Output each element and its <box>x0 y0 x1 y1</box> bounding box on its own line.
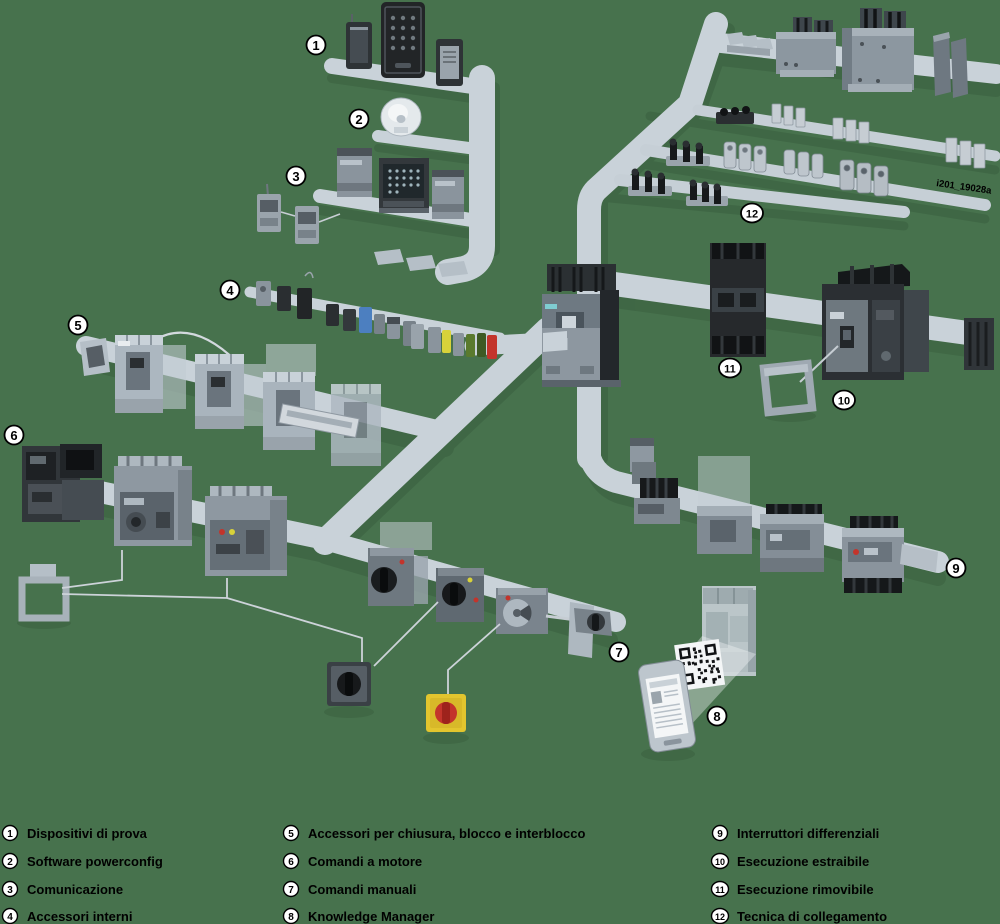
svg-text:3: 3 <box>7 885 13 896</box>
svg-text:Esecuzione estraibile: Esecuzione estraibile <box>737 854 869 869</box>
svg-text:Accessori per chiusura, blocco: Accessori per chiusura, blocco e interbl… <box>308 826 585 841</box>
svg-text:1: 1 <box>7 829 13 840</box>
svg-text:4: 4 <box>7 912 13 923</box>
svg-text:12: 12 <box>746 209 758 221</box>
svg-text:Accessori interni: Accessori interni <box>27 909 133 924</box>
svg-text:1: 1 <box>312 38 319 53</box>
svg-text:10: 10 <box>838 396 850 408</box>
svg-text:4: 4 <box>226 283 234 298</box>
svg-text:11: 11 <box>724 364 736 376</box>
svg-text:6: 6 <box>288 857 294 868</box>
svg-text:7: 7 <box>288 885 294 896</box>
svg-text:Comandi a motore: Comandi a motore <box>308 854 422 869</box>
svg-text:Knowledge Manager: Knowledge Manager <box>308 909 434 924</box>
svg-text:Comunicazione: Comunicazione <box>27 882 123 897</box>
svg-text:10: 10 <box>715 857 725 867</box>
svg-text:3: 3 <box>292 169 299 184</box>
svg-text:Tecnica di collegamento: Tecnica di collegamento <box>737 909 887 924</box>
svg-text:8: 8 <box>288 912 294 923</box>
svg-text:2: 2 <box>7 857 13 868</box>
svg-text:Dispositivi di prova: Dispositivi di prova <box>27 826 148 841</box>
svg-text:12: 12 <box>715 912 725 922</box>
svg-text:6: 6 <box>10 428 17 443</box>
svg-text:Software powerconfig: Software powerconfig <box>27 854 163 869</box>
svg-text:Comandi manuali: Comandi manuali <box>308 882 416 897</box>
svg-text:Interruttori differenziali: Interruttori differenziali <box>737 826 879 841</box>
svg-text:2: 2 <box>355 112 362 127</box>
svg-text:8: 8 <box>713 709 720 724</box>
svg-text:7: 7 <box>615 645 622 660</box>
svg-text:11: 11 <box>715 885 725 895</box>
svg-text:9: 9 <box>717 829 723 840</box>
svg-text:5: 5 <box>288 829 294 840</box>
svg-text:Esecuzione rimovibile: Esecuzione rimovibile <box>737 882 874 897</box>
svg-text:5: 5 <box>74 318 81 333</box>
svg-text:9: 9 <box>952 561 959 576</box>
